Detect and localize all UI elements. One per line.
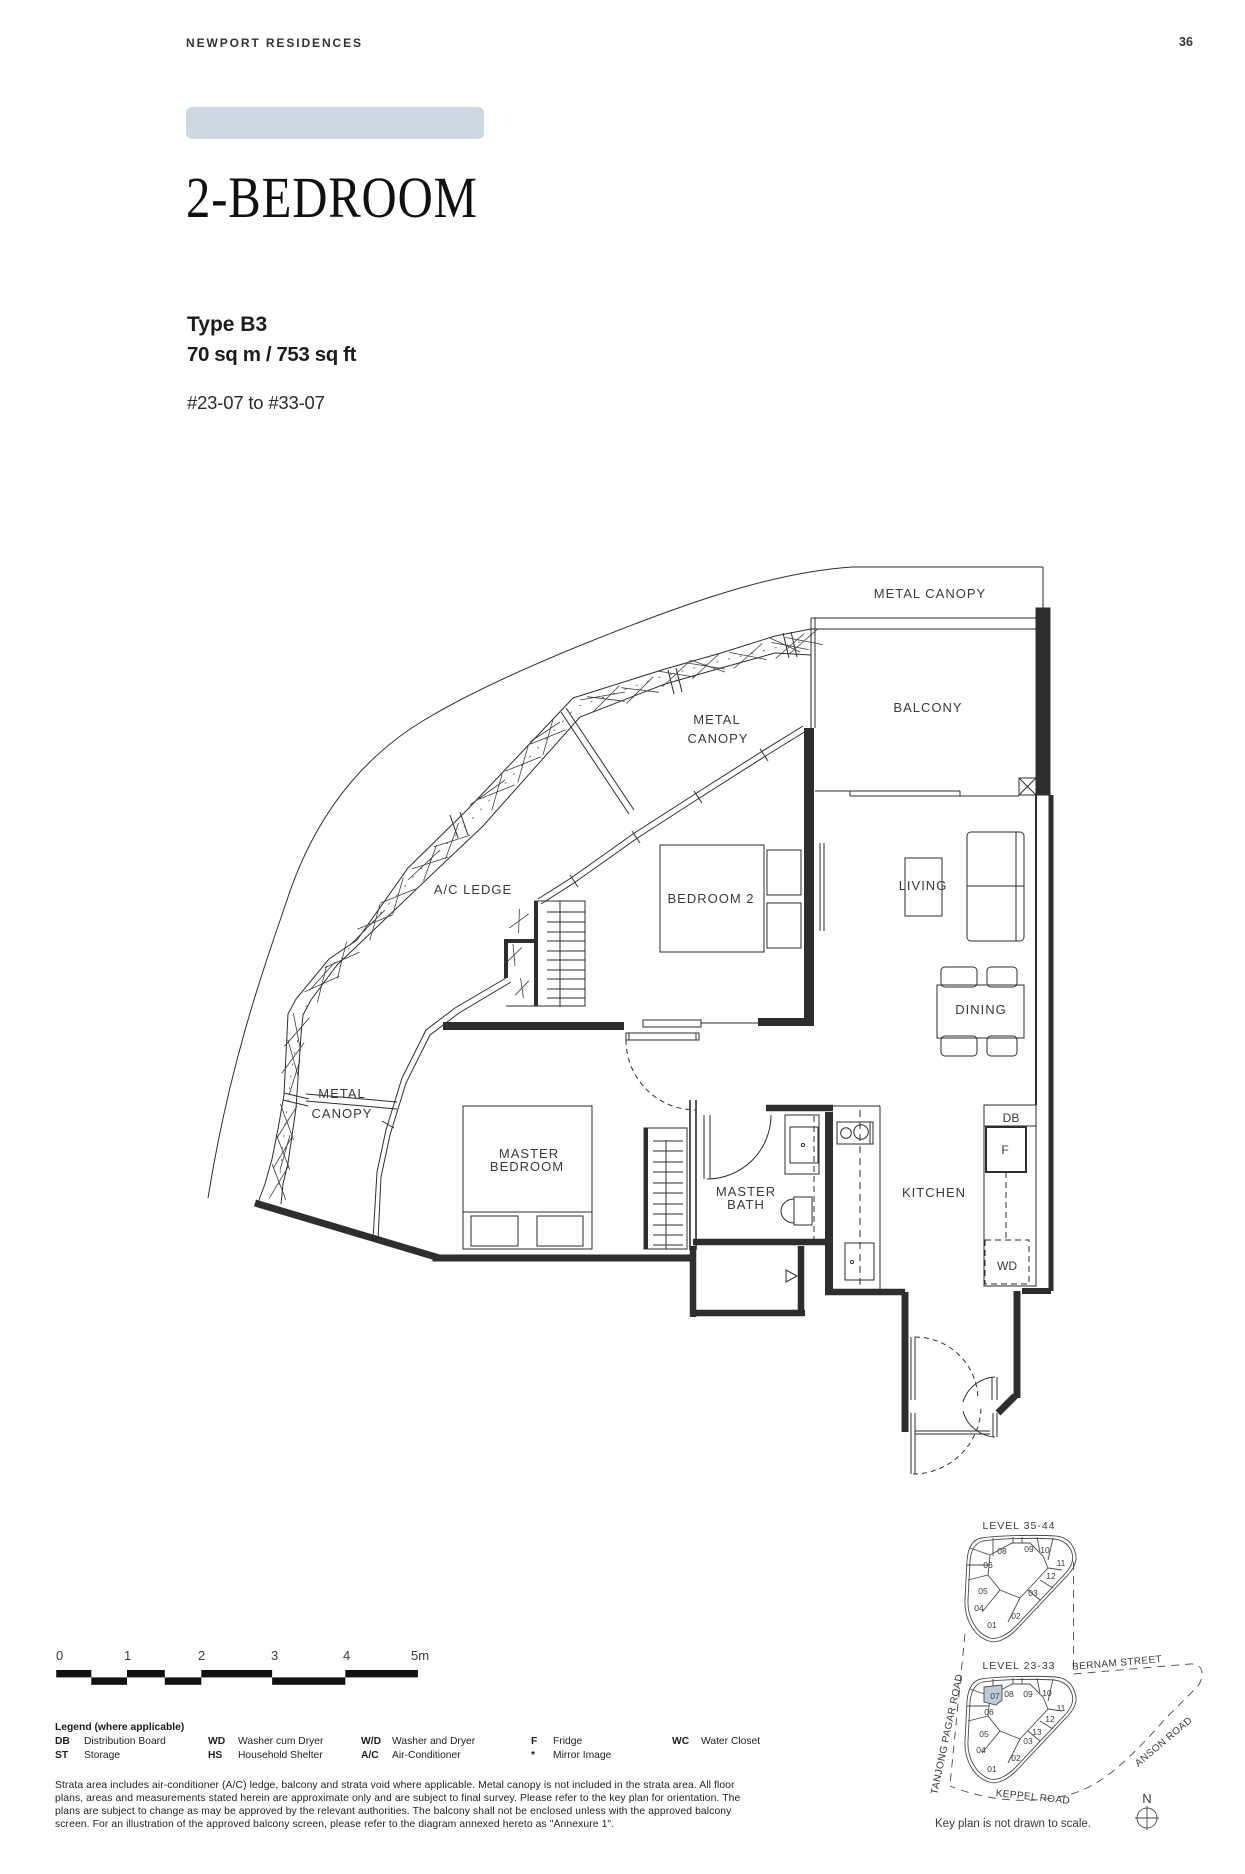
svg-text:BEDROOM: BEDROOM xyxy=(490,1159,564,1174)
svg-text:12: 12 xyxy=(1045,1714,1055,1724)
svg-text:10: 10 xyxy=(1042,1688,1052,1698)
svg-text:13: 13 xyxy=(1032,1727,1042,1737)
svg-text:BATH: BATH xyxy=(727,1197,765,1212)
svg-text:F: F xyxy=(1001,1143,1008,1157)
svg-text:11: 11 xyxy=(1057,1558,1066,1568)
svg-text:LEVEL 23-33: LEVEL 23-33 xyxy=(982,1660,1055,1672)
svg-text:TANJONG PAGAR ROAD: TANJONG PAGAR ROAD xyxy=(929,1673,965,1796)
svg-text:BALCONY: BALCONY xyxy=(893,700,962,715)
svg-text:05: 05 xyxy=(979,1729,989,1739)
svg-text:06: 06 xyxy=(984,1707,994,1717)
svg-text:DINING: DINING xyxy=(955,1002,1007,1017)
svg-text:DB: DB xyxy=(1003,1111,1020,1125)
svg-text:KEPPEL ROAD: KEPPEL ROAD xyxy=(995,1788,1070,1807)
svg-text:01: 01 xyxy=(987,1620,997,1630)
svg-text:08: 08 xyxy=(1004,1689,1014,1699)
svg-text:0: 0 xyxy=(56,1648,63,1663)
svg-text:2: 2 xyxy=(198,1648,205,1663)
svg-text:ANSON ROAD: ANSON ROAD xyxy=(1133,1715,1195,1769)
svg-text:03: 03 xyxy=(1028,1588,1038,1598)
svg-text:12: 12 xyxy=(1046,1571,1056,1581)
svg-text:LEVEL 35-44: LEVEL 35-44 xyxy=(982,1520,1055,1532)
svg-text:02: 02 xyxy=(1011,1753,1021,1763)
svg-text:KITCHEN: KITCHEN xyxy=(902,1185,966,1200)
svg-text:Key plan is not drawn to scale: Key plan is not drawn to scale. xyxy=(935,1818,1091,1830)
svg-text:07: 07 xyxy=(990,1691,1000,1701)
svg-text:METAL: METAL xyxy=(693,712,740,727)
svg-text:04: 04 xyxy=(976,1745,986,1755)
svg-text:01: 01 xyxy=(987,1764,997,1774)
svg-text:4: 4 xyxy=(343,1648,350,1663)
svg-text:WD: WD xyxy=(997,1259,1017,1273)
svg-text:10: 10 xyxy=(1040,1545,1050,1555)
svg-text:LIVING: LIVING xyxy=(899,878,948,893)
svg-text:09: 09 xyxy=(1024,1544,1034,1554)
svg-text:CANOPY: CANOPY xyxy=(688,731,749,746)
svg-text:04: 04 xyxy=(974,1603,984,1613)
svg-text:1: 1 xyxy=(124,1648,131,1663)
svg-text:05: 05 xyxy=(978,1586,988,1596)
svg-text:METAL CANOPY: METAL CANOPY xyxy=(874,586,986,601)
svg-text:09: 09 xyxy=(1023,1689,1033,1699)
svg-text:N: N xyxy=(1142,1791,1151,1806)
svg-text:3: 3 xyxy=(271,1648,278,1663)
svg-text:03: 03 xyxy=(1023,1736,1033,1746)
svg-text:BEDROOM 2: BEDROOM 2 xyxy=(667,891,754,906)
svg-text:5m: 5m xyxy=(411,1648,429,1663)
svg-text:02: 02 xyxy=(1011,1611,1021,1621)
svg-text:06: 06 xyxy=(983,1560,993,1570)
svg-text:08: 08 xyxy=(997,1546,1007,1556)
svg-text:11: 11 xyxy=(1057,1703,1066,1713)
